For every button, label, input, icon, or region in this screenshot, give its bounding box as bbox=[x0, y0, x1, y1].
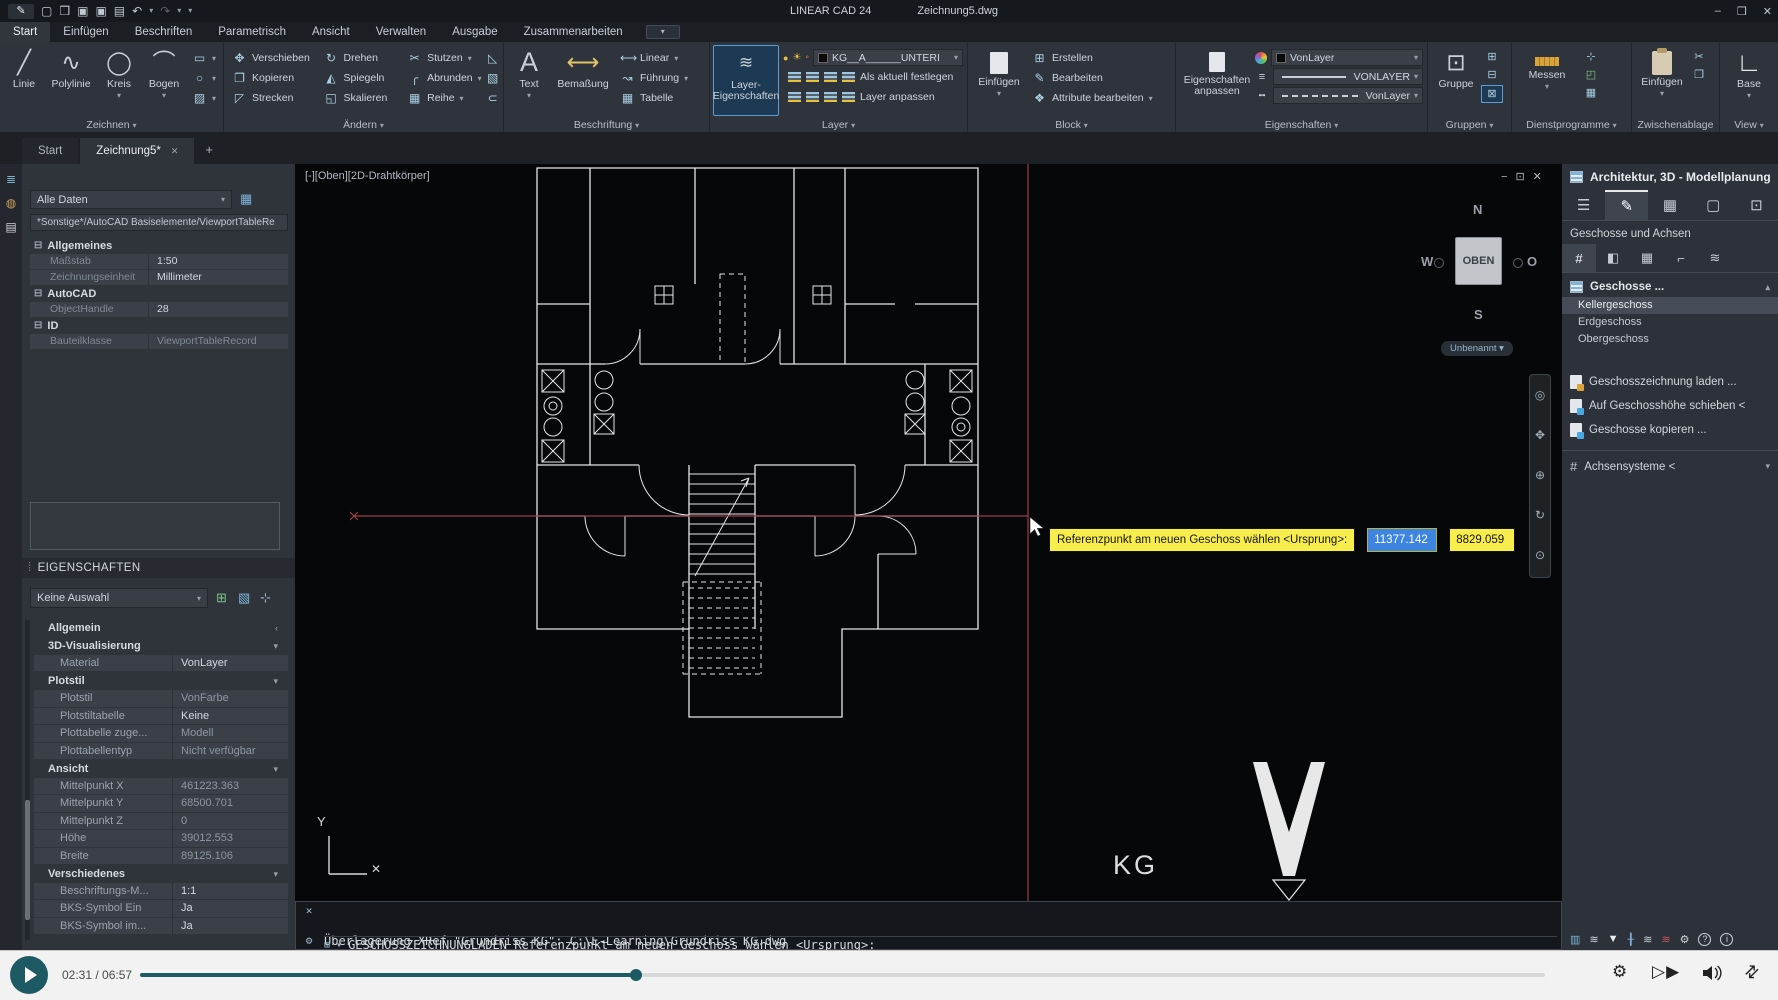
data-row[interactable]: BauteilklasseViewportTableRecord bbox=[30, 334, 288, 349]
properties-panel-header[interactable]: ⁞ EIGENSCHAFTEN bbox=[22, 558, 295, 578]
layer-stack-icon-7 bbox=[824, 92, 837, 102]
color-wheel-icon[interactable] bbox=[1255, 52, 1267, 64]
drawing-viewport[interactable]: [-][Oben][2D-Drahtkörper] −⊡✕ N W O S OB… bbox=[295, 164, 1562, 901]
command-recent-icon[interactable]: ⊞ bbox=[324, 940, 330, 951]
insert-block-button[interactable]: Einfügen▾ bbox=[971, 45, 1027, 116]
page-icon: ▢ bbox=[1706, 196, 1720, 214]
layer-color-swatch bbox=[818, 53, 828, 63]
layer-delete-icon[interactable]: ≋ bbox=[1661, 933, 1670, 946]
group-label-gruppen[interactable]: Gruppen ▾ bbox=[1428, 119, 1511, 131]
prop-row[interactable]: Plottabelle zuge...Modell bbox=[34, 725, 288, 741]
rectangle-button[interactable]: ▭▾ bbox=[187, 49, 221, 67]
copy-floors-icon bbox=[1570, 423, 1582, 437]
ungroup-icon[interactable]: ⊞ bbox=[1481, 49, 1503, 65]
prop-section-verschiedenes[interactable]: Verschiedenes▾ bbox=[34, 865, 288, 883]
ribbon: ╱Linie ∿Polylinie ◯Kreis▾ ⌒Bogen▾ ▭▾ ○▾ … bbox=[0, 42, 1778, 132]
pick-box-icon: ⊡ bbox=[1750, 196, 1763, 214]
copy-clip-icon[interactable]: ❐ bbox=[1689, 67, 1709, 83]
geschosse-section-header[interactable]: Geschosse ... ▴ bbox=[1562, 273, 1778, 297]
video-progress-knob[interactable] bbox=[630, 969, 642, 981]
playback-speed-icon[interactable]: ▷▶ bbox=[1652, 962, 1680, 982]
layer-stack-icon-3 bbox=[824, 72, 837, 82]
ucs-icon bbox=[329, 836, 367, 874]
coordinate-y-input[interactable]: 8829.059 bbox=[1449, 528, 1515, 552]
rp-tab-calc[interactable]: ▦ bbox=[1648, 190, 1691, 220]
qat-more-icon[interactable]: ▾ bbox=[188, 4, 192, 18]
tab-ansicht[interactable]: Ansicht bbox=[299, 22, 363, 42]
ribbon-group-gruppen: ⊡Gruppe ⊞ ⊟ ⊠ Gruppen ▾ bbox=[1428, 42, 1512, 132]
floor-item-erdgeschoss[interactable]: Erdgeschoss bbox=[1562, 314, 1778, 331]
data-row[interactable]: Maßstab1:50 bbox=[30, 254, 288, 269]
prop-row[interactable]: PlotstiltabelleKeine bbox=[34, 708, 288, 724]
mirror-icon: ◭ bbox=[324, 71, 339, 85]
group-label-block[interactable]: Block ▾ bbox=[968, 119, 1175, 131]
quick-access-toolbar: ✎ ▢ ❒ ▣ ▣ ▤ ↶ ▾ ↷ ▾ ▾ bbox=[0, 4, 192, 19]
array-button[interactable]: ▦Reihe▾ bbox=[402, 89, 480, 107]
move-button[interactable]: ✥Verschieben bbox=[227, 49, 319, 67]
compass-south[interactable]: S bbox=[1474, 307, 1483, 322]
achsensysteme-section[interactable]: # Achsensysteme < ▾ bbox=[1562, 451, 1778, 478]
rp-tab-menu[interactable]: ☰ bbox=[1562, 190, 1605, 220]
group-label-view[interactable]: View ▾ bbox=[1720, 119, 1778, 131]
base-view-icon: ∟ bbox=[1736, 47, 1761, 79]
circle-button[interactable]: ◯Kreis▾ bbox=[97, 45, 141, 116]
window-icon: ▦ bbox=[1641, 250, 1653, 266]
dynamic-input-tooltip: Referenzpunkt am neuen Geschoss wählen <… bbox=[1049, 528, 1515, 552]
ribbon-group-beschriftung: AText▾ ⟷Bemaßung ⟷Linear▾ ↝Führung▾ ▦Tab… bbox=[504, 42, 710, 132]
layer-stack-icon-5 bbox=[788, 92, 801, 102]
lineweight-icon[interactable]: ≡ bbox=[1255, 71, 1269, 83]
plan-title-label: KG bbox=[1113, 850, 1158, 881]
ellipse-icon: ○ bbox=[192, 71, 207, 85]
polyline-icon: ∿ bbox=[61, 47, 80, 79]
group-label-zeichnen[interactable]: Zeichnen ▾ bbox=[0, 119, 223, 131]
hatch-button[interactable]: ▨▾ bbox=[187, 89, 221, 107]
layer-properties-button[interactable]: ≋ Layer-Eigenschaften bbox=[713, 45, 779, 116]
new-file-icon[interactable]: ▢ bbox=[41, 4, 52, 18]
group-label-aendern[interactable]: Ändern ▾ bbox=[224, 119, 503, 131]
floor-item-kellergeschoss[interactable]: Kellergeschoss bbox=[1562, 297, 1778, 314]
open-file-icon[interactable]: ❒ bbox=[59, 4, 70, 18]
viewport-label[interactable]: [-][Oben][2D-Drahtkörper] bbox=[305, 170, 430, 182]
compass-west[interactable]: W bbox=[1421, 254, 1433, 269]
rectangle-icon: ▭ bbox=[192, 51, 207, 65]
data-row[interactable]: ZeichnungseinheitMillimeter bbox=[30, 270, 288, 285]
pencil-icon: ✎ bbox=[1621, 197, 1634, 215]
viewport-maximize-icon[interactable]: ⊡ bbox=[1515, 171, 1532, 183]
undo-icon[interactable]: ↶ bbox=[132, 4, 142, 18]
prop-section-3d[interactable]: 3D-Visualisierung▾ bbox=[34, 637, 288, 655]
right-panel-section-title: Geschosse und Achsen bbox=[1562, 221, 1778, 244]
ribbon-group-layer: ≋ Layer-Eigenschaften ● ☀ ◦ KG__A______U… bbox=[710, 42, 968, 132]
ribbon-group-aendern: ✥Verschieben ❐Kopieren ◸Strecken ↻Drehen… bbox=[224, 42, 504, 132]
stretch-icon: ◸ bbox=[232, 91, 247, 105]
grip-icon: ⁞ bbox=[28, 562, 32, 574]
copy-button[interactable]: ❐Kopieren bbox=[227, 69, 319, 87]
layer-stack-icon-1 bbox=[788, 72, 801, 82]
ribbon-group-zeichnen: ╱Linie ∿Polylinie ◯Kreis▾ ⌒Bogen▾ ▭▾ ○▾ … bbox=[0, 42, 224, 132]
maximize-button[interactable]: ❒ bbox=[1737, 5, 1747, 18]
ribbon-tab-bar: Start Einfügen Beschriften Parametrisch … bbox=[0, 22, 1778, 42]
command-customize-icon[interactable]: ⚙ bbox=[306, 934, 313, 947]
rp-tab-pick[interactable]: ⊡ bbox=[1735, 190, 1778, 220]
copy-icon: ❐ bbox=[232, 71, 247, 85]
axes-hash-icon: # bbox=[1570, 459, 1577, 474]
prop-row[interactable]: MaterialVonLayer bbox=[34, 655, 288, 671]
menu-icon: ☰ bbox=[1577, 196, 1590, 214]
pipe-icon: ⌐ bbox=[1677, 251, 1685, 266]
prop-row[interactable]: PlottabellentypNicht verfügbar bbox=[34, 743, 288, 759]
panel-columns-icon[interactable]: ▥ bbox=[1570, 933, 1580, 946]
ribbon-display-toggle[interactable]: ▾ bbox=[646, 25, 680, 39]
redo-icon[interactable]: ↷ bbox=[160, 4, 170, 18]
base-view-button[interactable]: ∟Base▾ bbox=[1723, 45, 1775, 116]
edit-attributes-button[interactable]: ❖Attribute bearbeiten▾ bbox=[1027, 89, 1171, 107]
data-filter-dropdown[interactable]: Alle Daten▾ bbox=[30, 190, 232, 209]
data-group-allgemeines[interactable]: Allgemeines bbox=[47, 238, 112, 254]
calculator-tab-icon: ▦ bbox=[1663, 196, 1677, 214]
quick-select-icon[interactable]: ⊹ bbox=[1579, 49, 1603, 65]
expand-icon[interactable]: ▾ bbox=[1765, 461, 1770, 472]
rotate-icon: ↻ bbox=[324, 51, 339, 65]
ribbon-group-dienstprogramme: Messen▾ ⊹ ◰ ▦ Dienstprogramme ▾ bbox=[1512, 42, 1632, 132]
prop-row[interactable]: Mittelpunkt Y68500.701 bbox=[34, 795, 288, 811]
subtab-achsen[interactable]: # bbox=[1562, 244, 1596, 272]
close-button[interactable]: ✕ bbox=[1763, 5, 1772, 18]
minimize-button[interactable]: – bbox=[1715, 5, 1721, 17]
command-line[interactable]: ✕ ⚙ Überlagerung XRef "Grundriss KG": C:… bbox=[295, 901, 1562, 950]
play-icon bbox=[25, 967, 37, 983]
rp-tab-edit[interactable]: ✎ bbox=[1605, 190, 1648, 220]
tab-zusammenarbeiten[interactable]: Zusammenarbeiten bbox=[511, 22, 636, 42]
coordinate-x-input[interactable]: 11377.142 bbox=[1367, 528, 1437, 552]
filter-icon[interactable]: ▼ bbox=[1608, 933, 1619, 945]
left-panel: Alle Daten▾ ▦ *Sonstige*/AutoCAD Basisel… bbox=[22, 164, 295, 950]
layer-thaw-icon[interactable]: ☀ bbox=[792, 52, 801, 63]
ribbon-group-block: Einfügen▾ ⊞Erstellen ✎Bearbeiten ❖Attrib… bbox=[968, 42, 1176, 132]
line-button[interactable]: ╱Linie bbox=[3, 45, 45, 116]
video-settings-icon[interactable]: ⚙ bbox=[1612, 962, 1627, 982]
compass-north[interactable]: N bbox=[1473, 202, 1482, 217]
right-panel-subtabs: # ◧ ▦ ⌐ ≋ bbox=[1562, 244, 1778, 273]
dimension-button[interactable]: ⟷Bemaßung bbox=[551, 45, 615, 116]
undo-caret-icon[interactable]: ▾ bbox=[149, 4, 153, 18]
measure-button[interactable]: Messen▾ bbox=[1515, 45, 1579, 116]
ellipse-button[interactable]: ○▾ bbox=[187, 69, 221, 87]
table-button[interactable]: ▦Tabelle bbox=[615, 89, 705, 107]
prop-row[interactable]: Mittelpunkt X461223.363 bbox=[34, 778, 288, 794]
data-row[interactable]: ObjectHandle28 bbox=[30, 302, 288, 317]
ucs-y-label: Y bbox=[317, 814, 326, 829]
edit-attributes-icon: ❖ bbox=[1032, 91, 1047, 105]
move-icon: ✥ bbox=[232, 51, 247, 65]
prop-section-ansicht[interactable]: Ansicht▾ bbox=[34, 760, 288, 778]
layer-dropdown[interactable]: KG__A______UNTERI ▾ bbox=[813, 49, 963, 66]
storey-icon bbox=[1570, 281, 1583, 293]
subtab-wall[interactable]: ◧ bbox=[1596, 244, 1630, 272]
compass-east[interactable]: O bbox=[1527, 254, 1537, 269]
text-button[interactable]: AText▾ bbox=[507, 45, 551, 116]
ribbon-group-zwischenablage: Einfügen▾ ✂ ❐ Zwischenablage bbox=[1632, 42, 1720, 132]
play-button[interactable] bbox=[10, 956, 48, 994]
group-edit-icon[interactable]: ⊟ bbox=[1481, 67, 1503, 83]
select-window-icon[interactable]: ◰ bbox=[1579, 67, 1603, 83]
group-label-zwischenablage[interactable]: Zwischenablage bbox=[1632, 119, 1719, 131]
save-as-icon[interactable]: ▣ bbox=[95, 4, 106, 18]
document-title: Zeichnung5.dwg bbox=[917, 0, 998, 22]
tab-verwalten[interactable]: Verwalten bbox=[363, 22, 440, 42]
volume-icon[interactable] bbox=[1700, 963, 1724, 983]
video-progress-fill bbox=[140, 973, 635, 977]
create-block-icon: ⊞ bbox=[1032, 51, 1047, 65]
preview-box bbox=[30, 502, 280, 550]
match-layer-button[interactable]: Layer anpassen bbox=[783, 88, 963, 106]
model-browser-icon[interactable]: ≣ bbox=[6, 172, 16, 186]
prop-row[interactable]: PlotstilVonFarbe bbox=[34, 690, 288, 706]
data-grid: ⊟Allgemeines Maßstab1:50 Zeichnungseinhe… bbox=[30, 238, 288, 350]
circle-icon: ◯ bbox=[106, 47, 132, 79]
leader-icon: ↝ bbox=[620, 71, 635, 85]
group-icon: ⊡ bbox=[1446, 47, 1465, 79]
left-icon-strip: ≣ ◍ ▤ bbox=[0, 164, 22, 950]
prop-row[interactable]: BKS-Symbol EinJa bbox=[34, 900, 288, 916]
app-title: LINEAR CAD 24 bbox=[790, 0, 871, 22]
floor-item-obergeschoss[interactable]: Obergeschoss bbox=[1562, 331, 1778, 348]
mirror-button[interactable]: ◭Spiegeln bbox=[319, 69, 403, 87]
data-group-autocad[interactable]: AutoCAD bbox=[47, 286, 96, 302]
ribbon-group-eigenschaften: Eigenschaften anpassen VonLayer▾ ≡ VONLA… bbox=[1176, 42, 1428, 132]
subtab-pipe[interactable]: ⌐ bbox=[1664, 244, 1698, 272]
linear-dim-button[interactable]: ⟷Linear▾ bbox=[615, 49, 705, 67]
linetype-icon[interactable]: ╍ bbox=[1255, 89, 1269, 102]
fillet-button[interactable]: ╭Abrunden▾ bbox=[402, 69, 480, 87]
layer-on-icon[interactable]: ● bbox=[783, 53, 788, 63]
select-objects-icon[interactable]: ▧ bbox=[238, 590, 250, 606]
leader-button[interactable]: ↝Führung▾ bbox=[615, 69, 705, 87]
explode-icon: ▧ bbox=[485, 71, 500, 85]
command-caret-icon[interactable]: ▾ bbox=[336, 940, 342, 951]
window-title: LINEAR CAD 24 Zeichnung5.dwg bbox=[790, 0, 998, 22]
prop-row[interactable]: Breite89125.106 bbox=[34, 848, 288, 864]
text-icon: A bbox=[520, 47, 538, 79]
trim-icon: ✂ bbox=[407, 51, 422, 65]
layers-icon: ≋ bbox=[1710, 250, 1721, 266]
offset-button[interactable]: ⊂ bbox=[480, 89, 502, 107]
tab-parametrisch[interactable]: Parametrisch bbox=[205, 22, 299, 42]
toggle-pickadd-icon[interactable]: ⊞ bbox=[216, 590, 227, 606]
properties-scrollbar[interactable] bbox=[25, 620, 30, 940]
erase-button[interactable]: ◺ bbox=[480, 49, 502, 67]
hatch-icon: ▨ bbox=[192, 91, 207, 105]
polyline-button[interactable]: ∿Polylinie bbox=[45, 45, 97, 116]
explode-button[interactable]: ▧ bbox=[480, 69, 502, 87]
group-label-layer[interactable]: Layer ▾ bbox=[710, 119, 967, 131]
ucs-x-marker: ✕ bbox=[371, 862, 381, 876]
selection-dropdown[interactable]: Keine Auswahl▾ bbox=[30, 588, 208, 608]
command-close-icon[interactable]: ✕ bbox=[306, 904, 313, 917]
tab-beschriften[interactable]: Beschriften bbox=[122, 22, 206, 42]
axes-grid-icon: # bbox=[1575, 251, 1582, 266]
create-block-button[interactable]: ⊞Erstellen bbox=[1027, 49, 1171, 67]
data-group-id[interactable]: ID bbox=[47, 318, 58, 334]
prop-row[interactable]: BKS-Symbol im...Ja bbox=[34, 918, 288, 934]
arc-button[interactable]: ⌒Bogen▾ bbox=[141, 45, 187, 116]
right-panel-title: Architektur, 3D - Modellplanung bbox=[1562, 164, 1778, 188]
right-panel: Architektur, 3D - Modellplanung ☰ ✎ ▦ ▢ … bbox=[1562, 164, 1778, 950]
save-icon[interactable]: ▣ bbox=[77, 4, 88, 18]
video-timestamp: 02:31 / 06:57 bbox=[62, 968, 132, 982]
set-current-layer-button[interactable]: Als aktuell festlegen bbox=[783, 68, 963, 86]
settings-gear-icon[interactable]: ⚙ bbox=[1680, 933, 1690, 946]
prop-section-allgemein[interactable]: Allgemein‹ bbox=[34, 619, 288, 637]
table-icon: ▦ bbox=[620, 91, 635, 105]
cut-icon[interactable]: ✂ bbox=[1689, 49, 1709, 65]
view-cube[interactable]: OBEN bbox=[1455, 237, 1502, 285]
insert-block-icon bbox=[990, 52, 1008, 74]
help-icon[interactable]: ? bbox=[1698, 933, 1711, 946]
rotate-button[interactable]: ↻Drehen bbox=[319, 49, 403, 67]
prop-row[interactable]: Mittelpunkt Z0 bbox=[34, 813, 288, 829]
rp-tab-page[interactable]: ▢ bbox=[1692, 190, 1735, 220]
mouse-cursor bbox=[1030, 517, 1044, 536]
scrollbar-thumb[interactable] bbox=[25, 800, 30, 920]
doc-tab-start[interactable]: Start bbox=[22, 138, 78, 164]
paste-button[interactable]: Einfügen▾ bbox=[1635, 45, 1689, 116]
wall-icon: ◧ bbox=[1607, 250, 1619, 266]
copy-floors-button[interactable]: Geschosse kopieren ... bbox=[1562, 418, 1778, 442]
object-color-dropdown[interactable]: VonLayer▾ bbox=[1271, 49, 1423, 66]
linear-dim-icon: ⟷ bbox=[620, 51, 635, 65]
layer-states-icon[interactable]: ≋ bbox=[1589, 933, 1598, 946]
prompt-tooltip-text: Referenzpunkt am neuen Geschoss wählen <… bbox=[1049, 528, 1355, 552]
right-panel-tabs: ☰ ✎ ▦ ▢ ⊡ bbox=[1562, 190, 1778, 221]
calculator-icon[interactable]: ▦ bbox=[1579, 85, 1603, 101]
offset-icon: ⊂ bbox=[485, 91, 500, 105]
stretch-button[interactable]: ◸Strecken bbox=[227, 89, 319, 107]
layer-stack-icon-2 bbox=[806, 72, 819, 82]
tab-ausgabe[interactable]: Ausgabe bbox=[439, 22, 510, 42]
trim-button[interactable]: ✂Stutzen▾ bbox=[402, 49, 480, 67]
scale-icon: ◱ bbox=[324, 91, 339, 105]
erase-icon: ◺ bbox=[485, 51, 500, 65]
array-icon: ▦ bbox=[407, 91, 422, 105]
group-label-eigenschaften[interactable]: Eigenschaften ▾ bbox=[1176, 119, 1427, 131]
layer-stack-icon-6 bbox=[806, 92, 819, 102]
doc-tab-close-icon[interactable]: ✕ bbox=[171, 138, 179, 164]
right-panel-status-bar: ▥ ≋ ▼ ╂ ≋ ≋ ⚙ ? i bbox=[1562, 930, 1778, 948]
app-logo-icon[interactable]: ✎ bbox=[8, 4, 34, 19]
layer-lock-icon[interactable]: ◦ bbox=[805, 52, 809, 63]
viewport-close-icon[interactable]: ✕ bbox=[1533, 171, 1550, 183]
group-label-dienstprogramme[interactable]: Dienstprogramme ▾ bbox=[1512, 119, 1631, 131]
tab-einfuegen[interactable]: Einfügen bbox=[50, 22, 121, 42]
subtab-layers[interactable]: ≋ bbox=[1698, 244, 1732, 272]
axes-tool-icon[interactable]: ╂ bbox=[1628, 933, 1635, 946]
ucs-name-pill[interactable]: Unbenannt ▾ bbox=[1441, 341, 1513, 356]
edit-block-icon: ✎ bbox=[1032, 71, 1047, 85]
prop-row[interactable]: Beschriftungs-M...1:1 bbox=[34, 883, 288, 899]
measure-icon bbox=[1535, 57, 1559, 66]
edit-block-button[interactable]: ✎Bearbeiten bbox=[1027, 69, 1171, 87]
prop-section-plotstil[interactable]: Plotstil▾ bbox=[34, 672, 288, 690]
linetype-dropdown[interactable]: VonLayer▾ bbox=[1273, 87, 1423, 104]
layer-stack-icon-4 bbox=[842, 72, 855, 82]
compass-ring-east[interactable] bbox=[1513, 258, 1523, 268]
lineweight-dropdown[interactable]: VONLAYER▾ bbox=[1273, 68, 1423, 85]
group-button[interactable]: ⊡Gruppe bbox=[1431, 45, 1481, 116]
info-icon[interactable]: i bbox=[1720, 933, 1733, 946]
group-label-beschriftung[interactable]: Beschriftung ▾ bbox=[504, 119, 709, 131]
tab-start[interactable]: Start bbox=[0, 22, 50, 42]
north-arrow bbox=[1253, 762, 1325, 900]
data-path-row[interactable]: *Sonstige*/AutoCAD Basiselemente/Viewpor… bbox=[30, 214, 288, 231]
properties-grid: Allgemein‹ 3D-Visualisierung▾ MaterialVo… bbox=[34, 619, 288, 935]
load-drawing-icon bbox=[1570, 375, 1582, 389]
compass-ring-west[interactable] bbox=[1434, 258, 1444, 268]
subtab-window[interactable]: ▦ bbox=[1630, 244, 1664, 272]
clipboard-panel-icon[interactable]: ▤ bbox=[5, 220, 16, 234]
quick-select-small-icon[interactable]: ⊹ bbox=[260, 590, 271, 606]
catalog-icon[interactable]: ◍ bbox=[6, 196, 16, 210]
group-select-icon[interactable]: ⊠ bbox=[1481, 85, 1503, 103]
arc-icon: ⌒ bbox=[153, 47, 176, 79]
move-to-floor-height-button[interactable]: Auf Geschosshöhe schieben < bbox=[1562, 394, 1778, 418]
print-icon[interactable]: ▤ bbox=[114, 4, 125, 18]
scale-button[interactable]: ◱Skalieren bbox=[319, 89, 403, 107]
load-floor-drawing-button[interactable]: Geschosszeichnung laden ... bbox=[1562, 370, 1778, 394]
doc-tab-zeichnung5[interactable]: Zeichnung5*✕ bbox=[80, 138, 194, 164]
ribbon-group-view: ∟Base▾ View ▾ bbox=[1720, 42, 1778, 132]
dimension-icon: ⟷ bbox=[567, 47, 600, 79]
line-icon: ╱ bbox=[17, 47, 31, 79]
title-bar: ✎ ▢ ❒ ▣ ▣ ▤ ↶ ▾ ↷ ▾ ▾ LINEAR CAD 24 Zeic… bbox=[0, 0, 1778, 22]
paste-icon bbox=[1652, 51, 1672, 75]
layer-stack-icon-8 bbox=[842, 92, 855, 102]
layer-move-icon[interactable]: ≋ bbox=[1643, 933, 1652, 946]
match-properties-button[interactable]: Eigenschaften anpassen bbox=[1179, 45, 1255, 116]
prop-row[interactable]: Höhe39012.553 bbox=[34, 830, 288, 846]
redo-caret-icon[interactable]: ▾ bbox=[177, 4, 181, 18]
collapse-icon[interactable]: ▴ bbox=[1765, 282, 1770, 293]
layer-properties-icon: ≋ bbox=[739, 48, 753, 80]
building-icon bbox=[1570, 171, 1583, 183]
table-view-icon[interactable]: ▦ bbox=[240, 191, 252, 207]
document-tab-bar: Start Zeichnung5*✕ + bbox=[0, 132, 1778, 164]
move-floor-icon bbox=[1570, 399, 1582, 413]
match-properties-icon bbox=[1209, 52, 1225, 72]
fillet-icon: ╭ bbox=[407, 71, 422, 85]
navigation-bar[interactable]: ◎ ✥ ⊕ ↻ ⊙ bbox=[1529, 374, 1551, 578]
new-doc-tab-button[interactable]: + bbox=[196, 138, 222, 164]
viewport-minimize-icon[interactable]: − bbox=[1501, 171, 1515, 183]
